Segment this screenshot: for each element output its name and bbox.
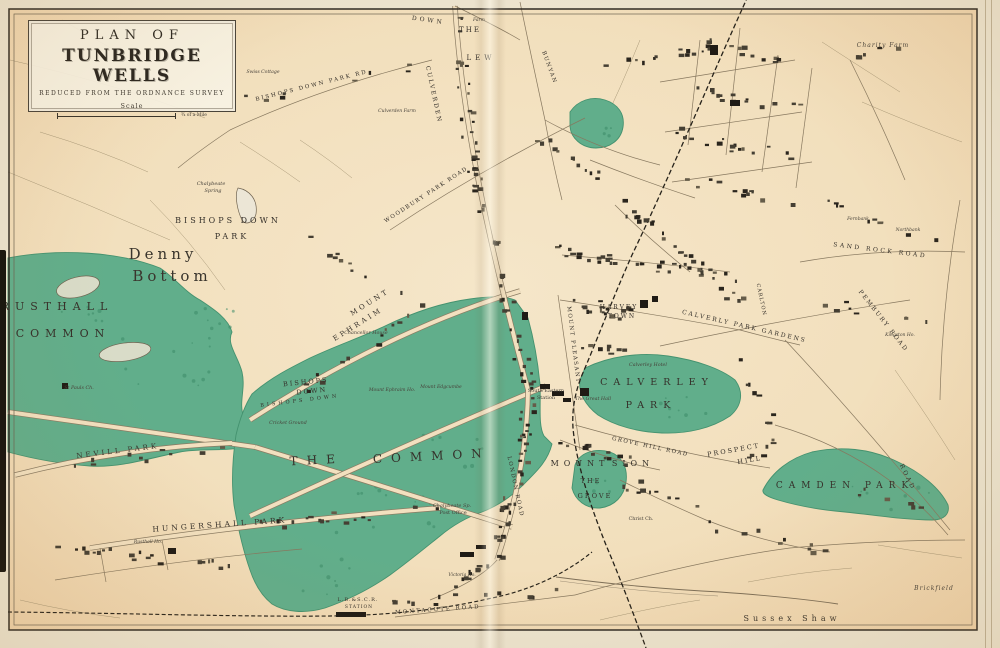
scale-tick-left — [57, 113, 58, 119]
map-label: Post Office — [439, 510, 466, 516]
map-label: STATION — [345, 604, 373, 610]
map-label: Northbank — [895, 227, 921, 233]
map-label: Bottom — [132, 267, 211, 285]
map-label: COMMON — [16, 327, 111, 340]
book-edge-shadow — [0, 250, 6, 572]
scale-bar: ¾ of a Mile — [57, 113, 207, 119]
map-label: PARK — [626, 400, 677, 411]
map-page: RUSTHALLCOMMONDennyBottomBISHOPS DOWNPAR… — [0, 0, 1000, 648]
title-plan-of: PLAN OF — [29, 28, 235, 43]
map-label: Swiss Cottage — [246, 69, 279, 75]
map-label: THE — [581, 477, 602, 485]
map-label: Brickfield — [913, 585, 954, 592]
map-label: Cricket Ground — [269, 420, 307, 426]
map-label: LEW — [467, 54, 496, 62]
map-label: BISHOPS DOWN — [175, 216, 281, 225]
map-label: Rusthall Ho. — [133, 539, 163, 545]
map-label: Christ Ch. — [629, 516, 654, 522]
title-map-name: TUNBRIDGE WELLS — [29, 46, 235, 86]
map-label: MOUNT — [551, 459, 610, 468]
map-label: HARVEY — [600, 304, 639, 311]
scale-note: ¾ of a Mile — [181, 113, 207, 118]
map-label: Kingston Ho. — [884, 332, 915, 338]
map-label: South Eastern — [528, 388, 565, 394]
map-label: PARK — [215, 232, 249, 241]
map-label: The Great Hall — [575, 396, 612, 402]
map-label: Spring — [204, 188, 221, 194]
map-label: RUSTHALL — [1, 300, 114, 313]
map-label: St Pauls Ch. — [64, 385, 94, 391]
scale-tick-right — [175, 113, 176, 119]
map-label: L.B.&S.C.R. — [337, 597, 378, 603]
scale-bar-line — [57, 116, 175, 117]
title-cartouche: PLAN OF TUNBRIDGE WELLS REDUCED FROM THE… — [28, 20, 236, 112]
map-label: Charity Farm — [857, 42, 909, 49]
map-label: Mount Edgcumbe — [419, 384, 462, 390]
map-label: SION — [612, 459, 654, 468]
map-label: Chancellor House — [344, 330, 388, 336]
scale-label: Scale — [29, 102, 235, 110]
map-label: Chalybeate — [197, 181, 226, 187]
map-label: Farm — [472, 17, 485, 23]
map-label: Culverden Farm — [378, 108, 416, 114]
map-label: Mount Ephraim Ho. — [368, 387, 416, 393]
map-label: Fernbank — [846, 216, 869, 222]
map-label: GROVE — [578, 492, 613, 500]
map-label: Calverley Hotel — [629, 362, 667, 368]
title-subtitle: REDUCED FROM THE ORDNANCE SURVEY — [29, 90, 235, 97]
map-label: TOWN — [608, 313, 636, 320]
map-label: THE — [289, 452, 344, 469]
map-label: Sussex Shaw — [744, 614, 841, 623]
map-label: Denny — [129, 245, 198, 263]
map-label: Station — [537, 395, 556, 401]
map-label: THE — [459, 26, 481, 34]
map-label: CAMDEN PARK — [776, 481, 914, 491]
map-label: CALVERLEY — [600, 377, 714, 388]
green-north-ground — [570, 99, 623, 149]
map-label: Chalybeate Sp. — [433, 503, 472, 509]
map-label: Victoria Ho. — [448, 572, 476, 578]
